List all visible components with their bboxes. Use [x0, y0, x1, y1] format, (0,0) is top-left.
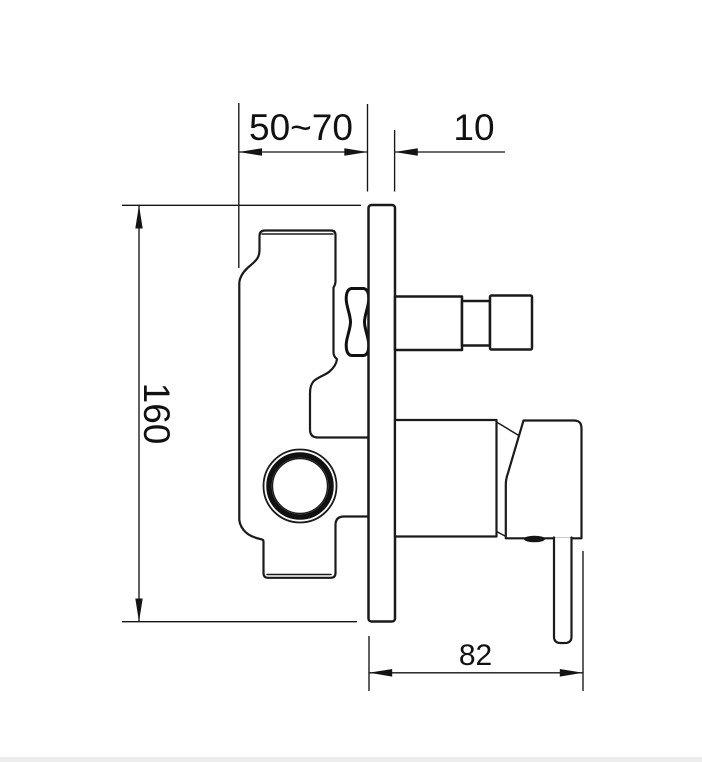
handle-projection-label: 82 — [459, 639, 492, 672]
outlet-port-inner-ring — [273, 459, 328, 514]
dimension-handle-projection: 82 — [369, 551, 583, 691]
sleeve-grip-joint-top-line — [497, 422, 521, 437]
mounting-nut — [346, 289, 369, 356]
plate-thickness-arrowhead — [395, 148, 418, 156]
mixer-valve-drawing: 50~70 10 160 82 — [0, 0, 702, 762]
cartridge-stem-shadow — [524, 536, 545, 543]
spout-neck — [462, 301, 490, 346]
depth-range-arrowhead-left — [239, 148, 262, 156]
plate-height-arrowhead-top — [135, 205, 142, 228]
valve-body-group — [239, 231, 368, 578]
wall-plate — [369, 205, 396, 622]
plate-height-arrowhead-bottom — [135, 599, 142, 622]
drawing-canvas: 50~70 10 160 82 — [0, 0, 702, 762]
shower-outlet-port — [264, 450, 337, 523]
spout-pipe — [395, 297, 462, 351]
page-bottom-strip — [0, 757, 702, 762]
sleeve-grip-joint-bottom-line — [497, 532, 507, 537]
handle-assembly — [395, 420, 582, 643]
handle-grip — [506, 421, 582, 539]
spout-end-cap — [490, 296, 532, 350]
plate-height-label: 160 — [136, 383, 177, 445]
handle-projection-arrowhead-left — [369, 669, 392, 677]
valve-body-outline — [239, 231, 368, 578]
handle-lever — [554, 538, 572, 644]
depth-range-arrowhead-right — [344, 148, 367, 156]
outlet-spout — [395, 296, 532, 351]
depth-range-label: 50~70 — [249, 107, 353, 148]
plate-thickness-label: 10 — [453, 107, 494, 148]
handle-projection-arrowhead-right — [560, 669, 583, 677]
dimension-plate-thickness: 10 — [395, 107, 505, 192]
handle-sleeve — [395, 420, 497, 537]
